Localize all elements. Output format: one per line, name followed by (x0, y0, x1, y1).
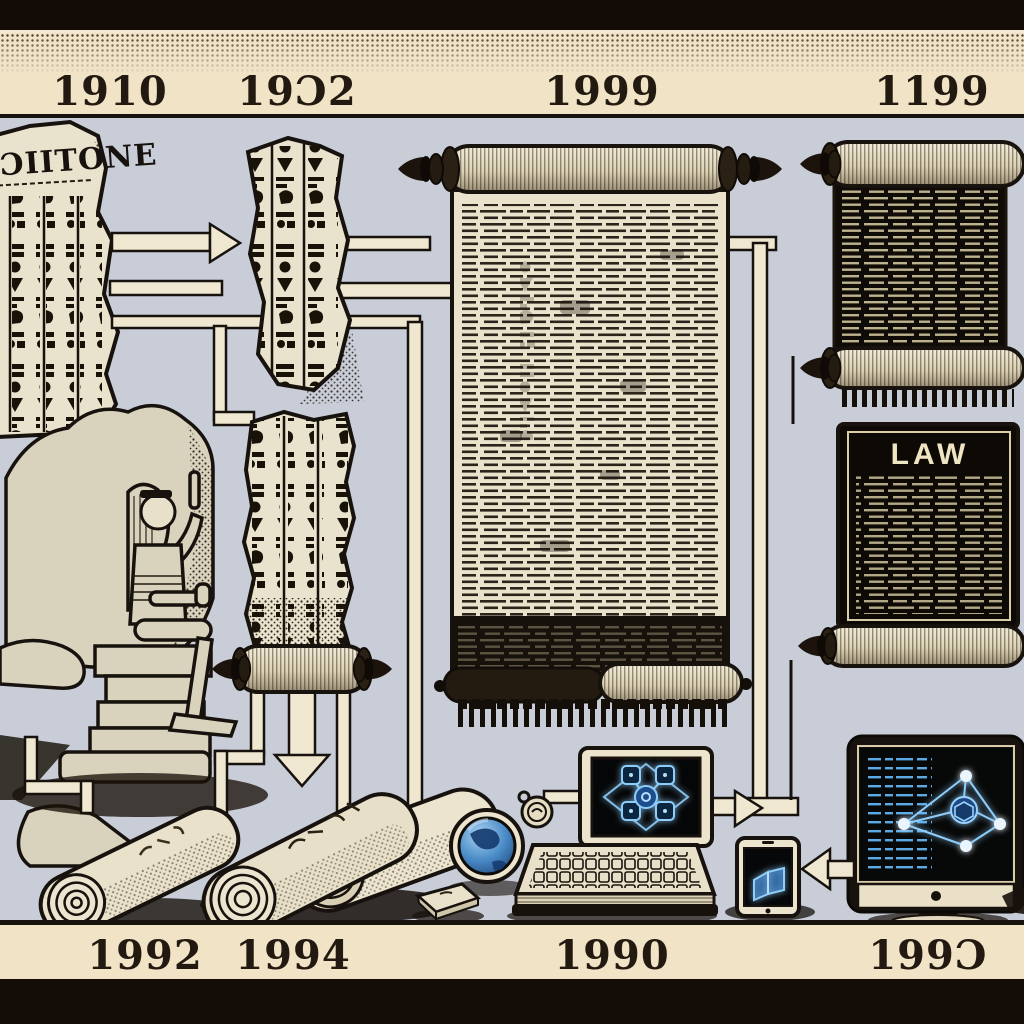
camera-dot-icon (931, 891, 941, 901)
bottom-year-4: 199Ɔ (868, 932, 987, 979)
top-year-band: 1910 19Ɔ2 1999 1199 (0, 0, 1024, 118)
globe (451, 810, 523, 882)
top-year-3: 1999 (544, 68, 659, 115)
large-papyrus-scroll (398, 146, 782, 714)
timeline-illustration: ƆIITONE (0, 0, 1024, 1024)
illustration-panel: ƆIITONE (0, 0, 1024, 1024)
keyboard-book (512, 845, 718, 916)
monitor-network (580, 748, 712, 846)
top-year-2: 19Ɔ2 (237, 68, 356, 115)
bottom-year-2: 1994 (235, 932, 350, 979)
bottom-year-band: 1992 1994 1990 199Ɔ (0, 920, 1024, 1024)
top-year-1: 1910 (52, 68, 167, 115)
tablet-ebook (737, 838, 799, 916)
law-title: LAW (891, 438, 970, 471)
imac-network (848, 736, 1024, 927)
dark-text-scroll (800, 142, 1024, 398)
bottom-year-3: 1990 (554, 932, 669, 979)
top-year-4: 1199 (874, 68, 989, 115)
bottom-year-1: 1992 (87, 932, 202, 979)
